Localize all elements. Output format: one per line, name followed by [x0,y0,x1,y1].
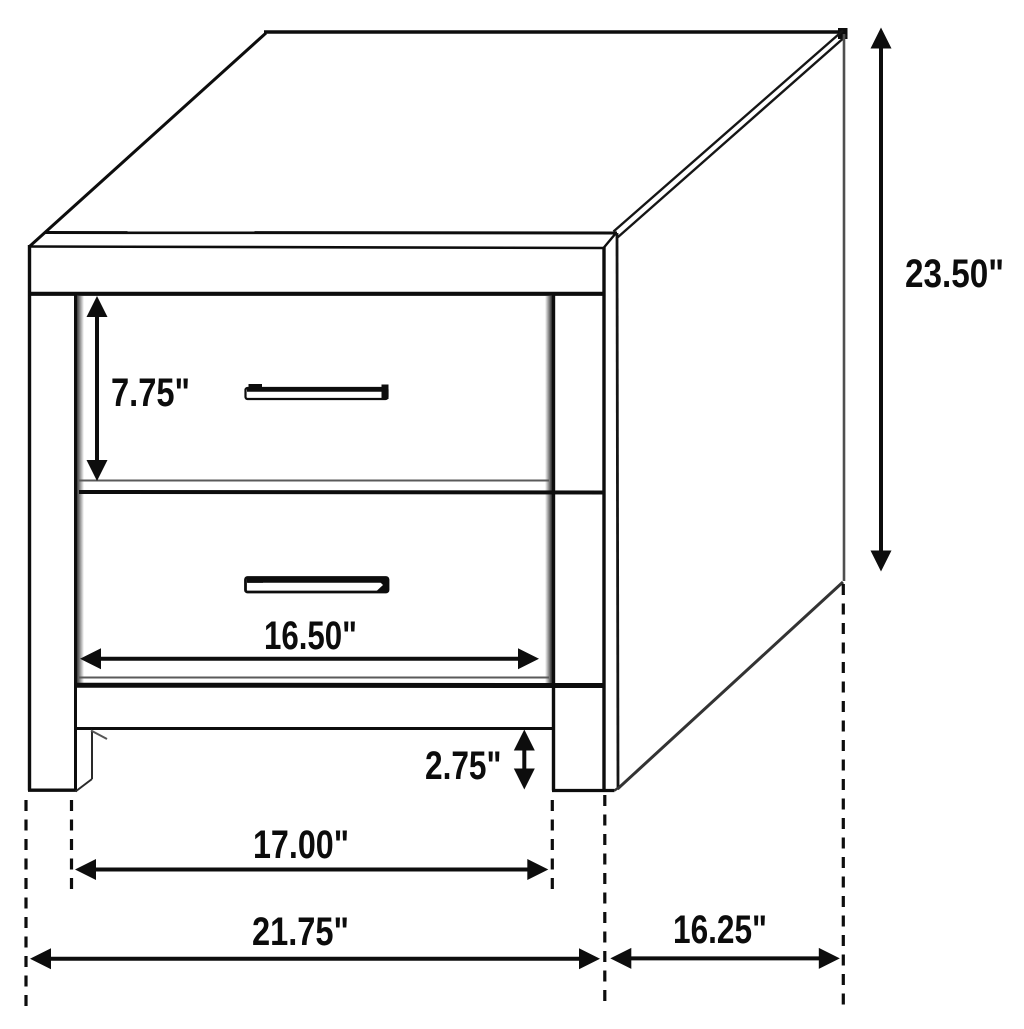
svg-text:2.75": 2.75" [425,744,502,788]
svg-text:23.50": 23.50" [905,252,1004,296]
svg-text:7.75": 7.75" [111,371,190,415]
svg-text:16.50": 16.50" [264,614,357,658]
svg-text:16.25": 16.25" [673,908,767,952]
svg-text:21.75": 21.75" [252,910,349,954]
svg-text:17.00": 17.00" [253,823,349,867]
